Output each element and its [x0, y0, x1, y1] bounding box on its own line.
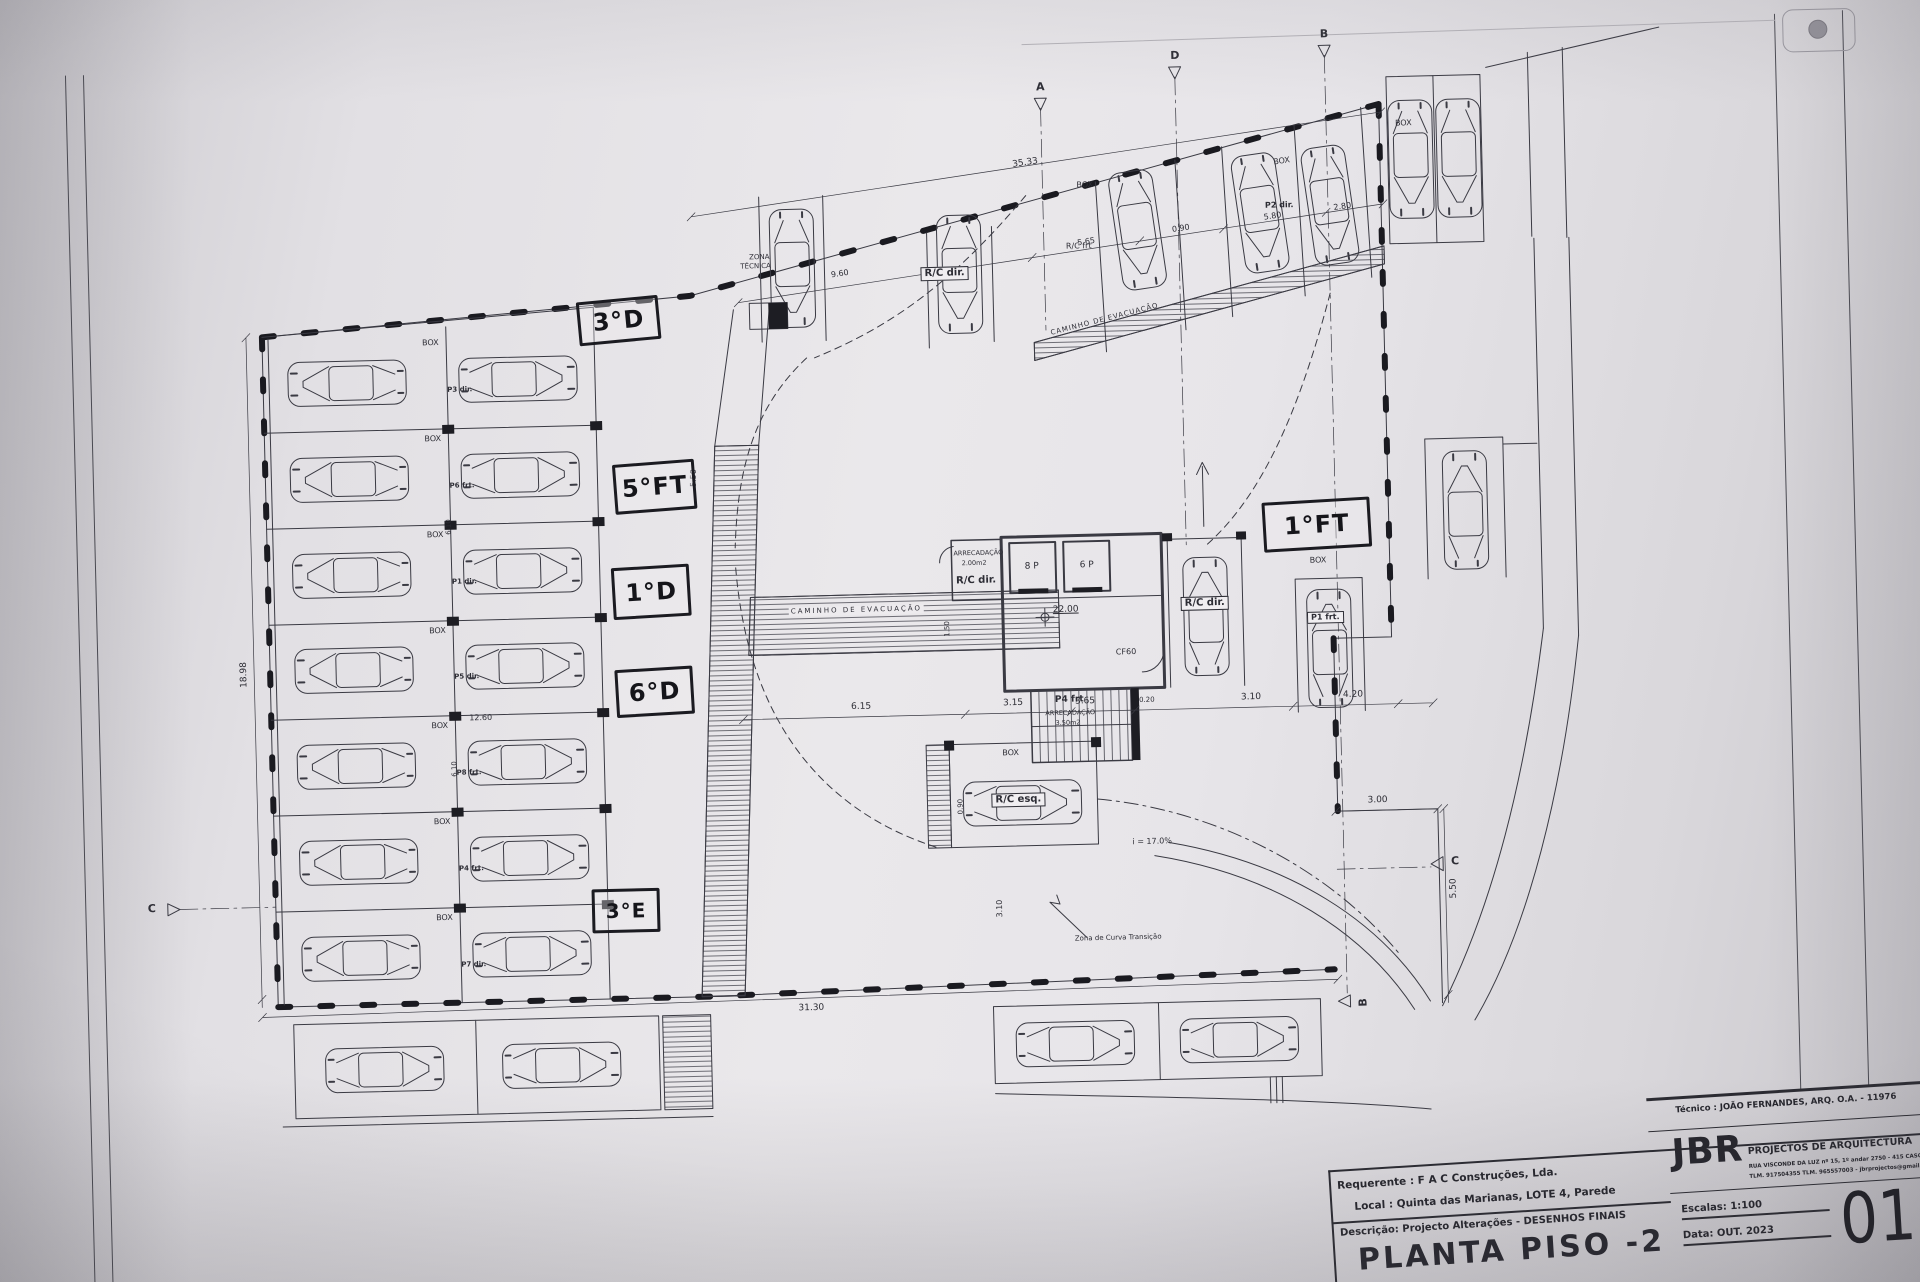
descricao-label: Descrição: — [1340, 1224, 1399, 1239]
dim-0-20: 0.20 — [1139, 697, 1155, 704]
handwritten-3d: 3°D — [576, 295, 662, 347]
slope-label: i = 17.0% — [1132, 837, 1172, 846]
marker-d: D — [1170, 49, 1179, 62]
firm-initials: JBR — [1670, 1128, 1744, 1173]
left-parking-block — [261, 307, 616, 1007]
section-markers — [147, 43, 1446, 1036]
handwritten-1d: 1°D — [611, 564, 692, 621]
box-row7: BOX — [436, 914, 453, 922]
p-row6: P4 frt. — [459, 865, 484, 873]
rc-dir-room-label: R/C dir. — [956, 575, 996, 586]
handwritten-5ft: 5°FT — [612, 459, 698, 515]
handwritten-6d: 6°D — [614, 666, 695, 719]
box-row1: BOX — [422, 339, 439, 347]
dim-3-10: 3.10 — [1241, 693, 1261, 702]
requerente-row: Requerente : F A C Construções, Lda. — [1337, 1166, 1558, 1192]
lift-8p-label: 8 P — [1025, 562, 1039, 571]
handwritten-3e: 3°E — [591, 888, 660, 934]
rc-esq-label: R/C esq. — [991, 792, 1045, 807]
marker-b-bottom: B — [1356, 998, 1369, 1007]
right-streets — [1420, 237, 1588, 1020]
dim-3-10v: 3.10 — [996, 900, 1004, 918]
dim-6-10b: 6.10 — [451, 761, 458, 777]
requerente-value: F A C Construções, Lda. — [1417, 1166, 1558, 1187]
p-row1: P3 dir. — [447, 386, 472, 394]
photographed-drawing: ZONA TÉCNICA 9.60 5.65 0.90 5.80 2.80 35… — [0, 0, 1920, 1282]
requerente-label: Requerente : — [1337, 1175, 1415, 1192]
arrecadacao2-area: 3.50m2 — [1055, 719, 1080, 726]
marker-c-left: C — [148, 902, 156, 915]
left-block-cars — [288, 356, 592, 982]
dim-3-00: 3.00 — [1367, 796, 1387, 805]
dim-31-30: 31.30 — [798, 1004, 824, 1014]
dim-18-98: 18.98 — [240, 662, 250, 688]
dim-1-50: 1.50 — [944, 621, 951, 637]
dim-3-15: 3.15 — [1003, 699, 1023, 708]
handwritten-1ft: 1°FT — [1261, 496, 1372, 552]
dim-0-90v: 0.90 — [957, 799, 964, 815]
rc-frt-label: R/C frt — [1066, 242, 1092, 251]
dim-3-65: 3.65 — [1075, 697, 1095, 706]
dim-4-20: 4.20 — [1343, 691, 1363, 700]
zona-tecnica-label: ZONA — [749, 254, 770, 261]
marker-a: A — [1036, 80, 1045, 93]
plan-linework — [0, 0, 1920, 1282]
cf60-label: CF60 — [1116, 648, 1137, 656]
rc-dir-car-a: R/C dir. — [1181, 596, 1229, 611]
date-field: Data: OUT. 2023 — [1683, 1221, 1832, 1246]
p-row7: P7 dir. — [461, 961, 486, 969]
box-row2: BOX — [424, 435, 441, 443]
zona-tecnica-label2: TÉCNICA — [740, 263, 771, 271]
sheet-number: 01 — [1838, 1174, 1919, 1261]
box-car-b: BOX — [1310, 556, 1327, 564]
local-label: Local : — [1354, 1198, 1393, 1212]
property-boundary — [257, 103, 1443, 1031]
arrecadacao2-label: ARRECADAÇÃO — [1045, 709, 1095, 717]
level-22-00: 22.00 — [1053, 605, 1079, 615]
drawing-sheet: ZONA TÉCNICA 9.60 5.65 0.90 5.80 2.80 35… — [0, 0, 1920, 1282]
box-row5: BOX — [431, 722, 448, 730]
arrecadacao-label: ARRECADAÇÃO — [953, 549, 1003, 557]
p-row4: P5 dir. — [454, 673, 479, 681]
box-row3: BOX — [427, 531, 444, 539]
p-row2: P6 frt. — [450, 482, 475, 490]
box-row4: BOX — [429, 627, 446, 635]
bottom-stalls — [281, 996, 1431, 1137]
box-rc-esq: BOX — [1002, 749, 1019, 757]
rc-dir-top-car-label: R/C dir. — [920, 266, 968, 281]
p-row5: P8 frt. — [457, 769, 482, 777]
arrecadacao-area: 2.00m2 — [962, 560, 987, 567]
p2-dir-label: P2 dir. — [1265, 201, 1294, 210]
box-label-top: BOX — [1076, 181, 1093, 189]
lift-6p-label: 6 P — [1080, 561, 1094, 570]
title-block-rule — [1328, 1133, 1920, 1173]
dim-6-10a: 6.10 — [445, 519, 452, 535]
scale-field: Escalas: 1:100 — [1681, 1195, 1830, 1220]
marker-b-top: B — [1320, 27, 1329, 40]
dim-6-15: 6.15 — [851, 703, 871, 712]
marker-c-right: C — [1451, 854, 1459, 867]
box-row6: BOX — [434, 818, 451, 826]
p1-frt-label: P1 frt. — [1307, 611, 1344, 624]
box-label-topright: BOX — [1395, 119, 1412, 127]
dim-5-50-right: 5.50 — [1449, 878, 1458, 898]
p-row3: P1 dir. — [452, 578, 477, 586]
dim-12-60: 12.60 — [469, 714, 492, 723]
dimension-lines — [160, 53, 1453, 1034]
